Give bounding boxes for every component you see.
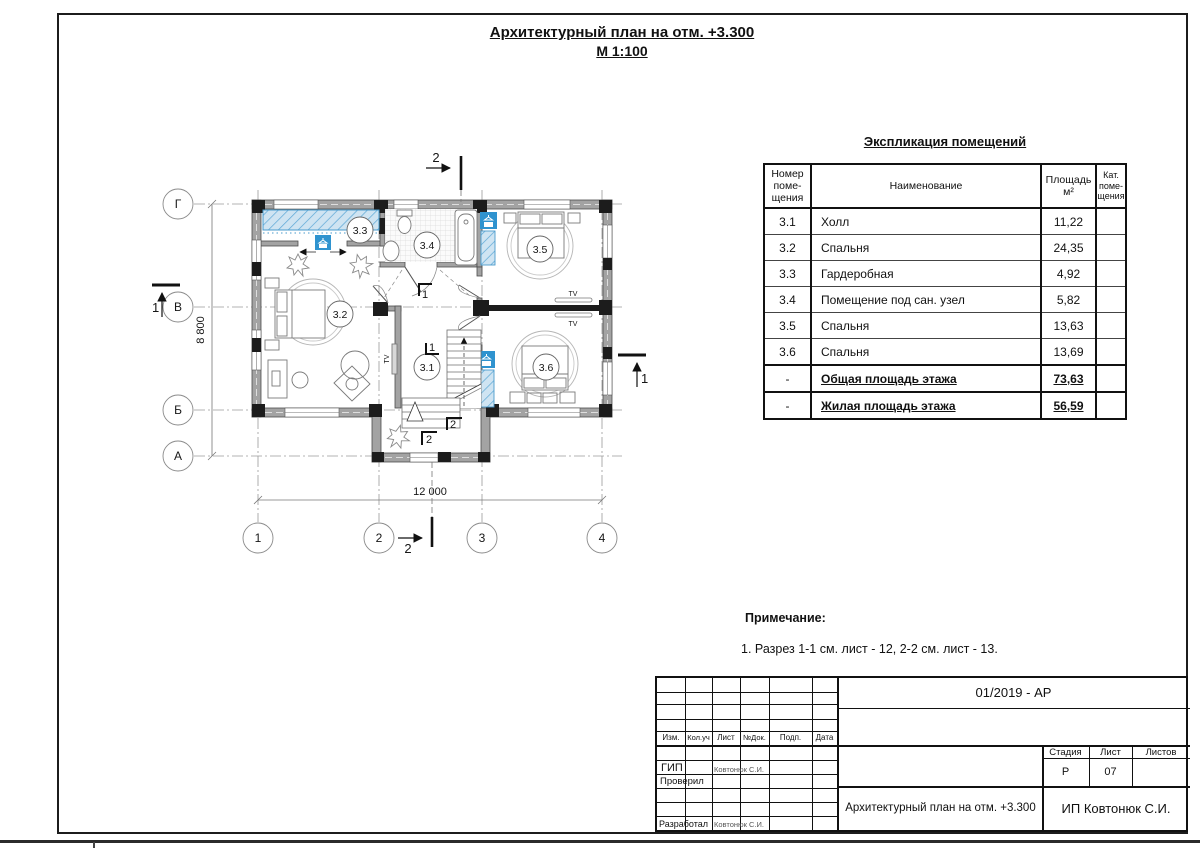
room-number: 3.3 xyxy=(353,225,368,237)
axis-row-a: А xyxy=(174,449,182,463)
desk-icon xyxy=(268,360,287,398)
stamp-sheets-label: Листов xyxy=(1132,747,1190,758)
washer-icon xyxy=(480,212,497,229)
tv-label: TV xyxy=(384,354,391,363)
stamp-stage-value: Р xyxy=(1042,759,1089,786)
stamp-doc-number: 01/2019 - АР xyxy=(837,678,1190,708)
table-row-total-area: - Общая площадь этажа 73,63 xyxy=(764,365,1126,392)
chair-round-icon xyxy=(341,351,369,379)
stamp-developed-label: Разработал xyxy=(659,819,708,829)
schedule-header-number: Номер поме- щения xyxy=(764,164,811,208)
section-label: 1 xyxy=(152,300,159,315)
schedule-header-cat: Кат. поме- щения xyxy=(1096,164,1126,208)
stamp-gip-label: ГИП xyxy=(661,762,683,774)
stamp-col-izm: Изм. xyxy=(657,733,685,742)
bedroom-32 xyxy=(265,278,397,401)
room-schedule-table: Номер поме- щения Наименование Площадь м… xyxy=(763,163,1127,420)
axis-row-b: Б xyxy=(174,403,182,417)
stamp-sheet-label: Лист xyxy=(1089,747,1132,758)
section-label: 1 xyxy=(641,371,648,386)
page-edge xyxy=(0,840,1200,843)
toilet-icon xyxy=(398,217,411,234)
section-label: 2 xyxy=(432,150,439,165)
toilet-tank-icon xyxy=(397,210,412,216)
section-label: 2 xyxy=(450,419,456,431)
room-number: 3.1 xyxy=(420,362,435,374)
room-number: 3.6 xyxy=(539,362,554,374)
nightstand-icon xyxy=(265,340,279,350)
side-table-icon xyxy=(334,366,370,401)
floor-plan-svg: 8 800 12 000 Г В Б А 1 2 3 4 xyxy=(140,140,660,570)
axis-row-g: Г xyxy=(175,197,182,211)
nightstand-icon xyxy=(568,213,580,223)
section-label: 2 xyxy=(426,434,432,446)
axis-col-1: 1 xyxy=(255,531,262,545)
tv-label: TV xyxy=(569,291,578,298)
schedule-title: Экспликация помещений xyxy=(765,134,1125,149)
room-number: 3.4 xyxy=(420,240,435,252)
section-label: 1 xyxy=(429,342,435,354)
table-row: 3.5 Спальня 13,63 xyxy=(764,313,1126,339)
table-row: 3.4 Помещение под сан. узел 5,82 xyxy=(764,287,1126,313)
section-label: 1 xyxy=(422,289,428,301)
drawing-sheet: Архитектурный план на отм. +3.300 М 1:10… xyxy=(0,0,1200,848)
wall-3536 xyxy=(477,305,612,311)
stamp-checked-label: Проверил xyxy=(660,776,704,787)
stamp-drawing-title: Архитектурный план на отм. +3.300 xyxy=(839,787,1042,830)
axis-row-v: В xyxy=(174,300,182,314)
dim-height: 8 800 xyxy=(195,316,207,344)
staircase xyxy=(402,330,481,428)
stamp-col-data: Дата xyxy=(812,733,837,742)
stamp-stage-label: Стадия xyxy=(1042,747,1089,758)
sink-icon xyxy=(383,241,399,261)
table-row: 3.3 Гардеробная 4,92 xyxy=(764,261,1126,287)
schedule-header-name: Наименование xyxy=(811,164,1041,208)
tv-icon xyxy=(392,344,397,374)
stamp-sheets-value xyxy=(1132,759,1190,786)
page-title: Архитектурный план на отм. +3.300 xyxy=(422,24,822,42)
stamp-col-ndok: №Док. xyxy=(740,733,769,742)
chair-icon xyxy=(292,372,308,388)
stamp-developed-name: Ковтонюк С.И. xyxy=(714,820,810,829)
washer-icon xyxy=(315,235,331,250)
table-row: 3.6 Спальня 13,69 xyxy=(764,339,1126,366)
table-row-living-area: - Жилая площадь этажа 56,59 xyxy=(764,392,1126,419)
title-block: Изм. Кол.уч Лист №Док. Подп. Дата ГИП Ко… xyxy=(655,676,1188,832)
tv-label: TV xyxy=(569,321,578,328)
stamp-col-koluch: Кол.уч xyxy=(685,733,712,742)
stamp-sheet-value: 07 xyxy=(1089,759,1132,786)
bench-icon xyxy=(510,392,525,403)
stamp-company: ИП Ковтонюк С.И. xyxy=(1042,787,1190,830)
room-number: 3.2 xyxy=(333,309,348,321)
note-item: 1. Разрез 1-1 см. лист - 12, 2-2 см. лис… xyxy=(741,642,998,656)
floor-plan: 8 800 12 000 Г В Б А 1 2 3 4 xyxy=(140,140,660,570)
dim-width: 12 000 xyxy=(413,486,447,498)
table-row: 3.1 Холл 11,22 xyxy=(764,208,1126,235)
stamp-col-podp: Подп. xyxy=(769,733,812,742)
table-row: 3.2 Спальня 24,35 xyxy=(764,235,1126,261)
room-number: 3.5 xyxy=(533,244,548,256)
bed-icon xyxy=(275,290,325,338)
bedroom-36 xyxy=(478,331,578,407)
page-corner-mark xyxy=(93,842,95,848)
stamp-gip-name: Ковтонюк С.И. xyxy=(714,765,810,774)
schedule-header-area: Площадь м² xyxy=(1041,164,1096,208)
section-label: 2 xyxy=(404,541,411,556)
axis-col-4: 4 xyxy=(599,531,606,545)
page-scale: М 1:100 xyxy=(422,43,822,59)
axis-col-2: 2 xyxy=(376,531,383,545)
nightstand-icon xyxy=(265,278,279,288)
note-heading: Примечание: xyxy=(745,611,826,625)
stamp-col-list: Лист xyxy=(712,733,740,742)
axis-col-3: 3 xyxy=(479,531,486,545)
nightstand-icon xyxy=(504,213,516,223)
